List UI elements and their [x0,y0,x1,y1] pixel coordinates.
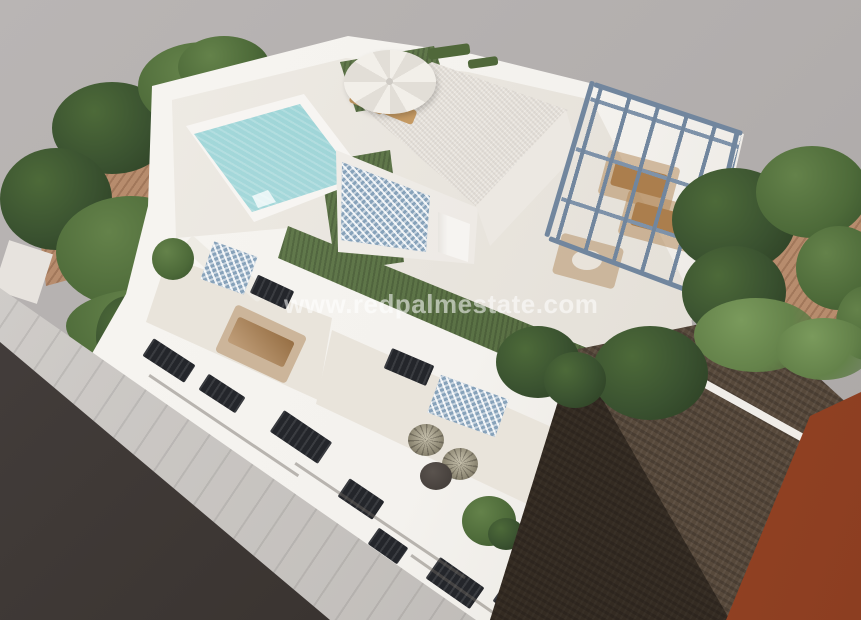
potted-plant [152,238,194,280]
coffee-table [420,462,452,490]
parasol-pole [386,78,393,85]
potted-plant [544,352,606,408]
villa-aerial-render: www.redpalmestate.com [0,0,861,620]
garden-hedge [776,318,861,380]
hanging-chair [408,424,444,456]
watermark-text: www.redpalmestate.com [284,289,598,320]
tree-canopy [756,146,861,238]
garden-hedge [592,326,708,420]
